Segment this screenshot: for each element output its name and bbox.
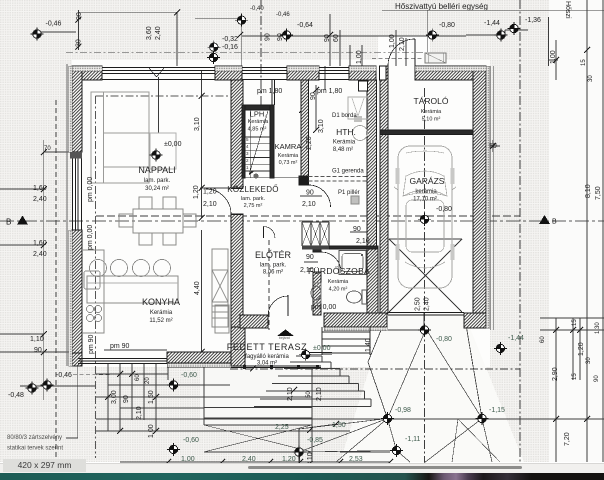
svg-text:KONYHA: KONYHA xyxy=(142,297,180,307)
svg-text:2,40: 2,40 xyxy=(33,196,47,203)
svg-text:1,00: 1,00 xyxy=(550,50,557,64)
svg-text:-0,46: -0,46 xyxy=(276,12,290,18)
svg-text:LPH.: LPH. xyxy=(250,110,267,119)
svg-text:-0,98: -0,98 xyxy=(395,407,411,414)
svg-text:60: 60 xyxy=(540,336,546,343)
svg-text:lam. park.: lam. park. xyxy=(260,263,287,269)
svg-text:15: 15 xyxy=(581,59,587,66)
svg-text:1,60: 1,60 xyxy=(33,240,47,247)
svg-text:Kerámia: Kerámia xyxy=(278,153,299,159)
svg-text:30: 30 xyxy=(76,39,83,47)
svg-text:90: 90 xyxy=(76,12,83,20)
svg-text:fagyálló kerámia: fagyálló kerámia xyxy=(245,354,289,360)
svg-text:pm 90: pm 90 xyxy=(110,343,130,350)
svg-text:KÖZLEKEDŐ: KÖZLEKEDŐ xyxy=(227,185,279,194)
svg-text:2,10: 2,10 xyxy=(300,267,314,274)
svg-text:pm 0,00: pm 0,00 xyxy=(311,304,336,311)
svg-text:-1,15: -1,15 xyxy=(489,407,505,414)
svg-text:bejárat: bejárat xyxy=(279,336,290,340)
svg-text:-0,32: -0,32 xyxy=(222,36,238,43)
svg-text:pm 0,00: pm 0,00 xyxy=(87,177,94,202)
svg-text:-0,48: -0,48 xyxy=(8,392,24,399)
svg-text:1,60: 1,60 xyxy=(33,185,47,192)
svg-text:pm 1,80: pm 1,80 xyxy=(317,88,342,95)
svg-text:2,10: 2,10 xyxy=(399,37,406,51)
svg-text:4,40: 4,40 xyxy=(194,281,201,295)
svg-text:80/80/3 zártszelvény: 80/80/3 zártszelvény xyxy=(7,435,62,441)
svg-text:-1,11: -1,11 xyxy=(405,436,421,443)
svg-text:1,40: 1,40 xyxy=(365,338,372,352)
svg-text:B: B xyxy=(6,218,11,227)
svg-text:90: 90 xyxy=(123,395,130,403)
svg-text:3,10: 3,10 xyxy=(194,117,201,131)
svg-text:2,40: 2,40 xyxy=(33,251,47,258)
svg-text:1,50: 1,50 xyxy=(148,390,155,404)
svg-text:Kerámia: Kerámia xyxy=(328,279,349,285)
svg-text:90: 90 xyxy=(34,347,42,354)
svg-text:Kerámia: Kerámia xyxy=(333,140,356,146)
svg-text:Kerámia: Kerámia xyxy=(150,310,173,316)
svg-text:B: B xyxy=(552,219,557,226)
svg-text:2,40: 2,40 xyxy=(424,297,431,311)
svg-text:15: 15 xyxy=(572,319,578,326)
svg-text:-0,80: -0,80 xyxy=(436,206,452,213)
svg-text:4,85 m²: 4,85 m² xyxy=(248,127,267,133)
svg-text:5,10 m²: 5,10 m² xyxy=(422,117,441,123)
svg-text:TÁROLÓ: TÁROLÓ xyxy=(414,96,449,106)
svg-text:Hőszivattyú belléri egység: Hőszivattyú belléri egység xyxy=(395,2,488,11)
svg-text:3,04 m²: 3,04 m² xyxy=(257,361,277,367)
svg-text:FEDETT TERASZ: FEDETT TERASZ xyxy=(227,342,307,352)
svg-text:ELŐTÉR: ELŐTÉR xyxy=(255,250,292,260)
svg-text:2,20: 2,20 xyxy=(306,136,313,150)
svg-text:60: 60 xyxy=(135,374,141,381)
svg-text:1,50: 1,50 xyxy=(332,422,346,429)
svg-text:7,20: 7,20 xyxy=(564,432,571,446)
svg-text:kerámia: kerámia xyxy=(415,189,437,195)
svg-text:Kerámia: Kerámia xyxy=(248,119,269,125)
svg-text:20: 20 xyxy=(145,377,151,384)
svg-text:pm 0,00: pm 0,00 xyxy=(87,225,94,250)
svg-text:Hőszi: Hőszi xyxy=(564,1,571,19)
svg-text:-0,46: -0,46 xyxy=(56,372,72,379)
svg-text:±0,00: ±0,00 xyxy=(164,141,182,148)
svg-text:pm 1,80: pm 1,80 xyxy=(257,88,282,95)
svg-text:90: 90 xyxy=(353,226,361,233)
svg-text:50: 50 xyxy=(306,391,312,398)
svg-text:90: 90 xyxy=(306,254,314,261)
svg-text:lam. park.: lam. park. xyxy=(241,196,266,202)
svg-text:0,73 m²: 0,73 m² xyxy=(279,160,298,166)
svg-text:-1,44: -1,44 xyxy=(484,20,500,27)
svg-text:3,60: 3,60 xyxy=(146,26,153,40)
svg-text:90: 90 xyxy=(306,190,314,197)
svg-text:lam. park.: lam. park. xyxy=(144,178,171,184)
svg-text:1,00: 1,00 xyxy=(356,50,363,64)
svg-text:P1 pillér: P1 pillér xyxy=(338,190,360,196)
svg-text:-0,60: -0,60 xyxy=(181,372,197,379)
svg-text:30: 30 xyxy=(586,357,592,364)
svg-text:8,10: 8,10 xyxy=(585,184,592,198)
svg-text:2,10: 2,10 xyxy=(136,406,143,420)
svg-text:-0,40: -0,40 xyxy=(250,6,264,12)
svg-text:HTH.: HTH. xyxy=(336,127,356,137)
svg-text:30,24 m²: 30,24 m² xyxy=(145,186,169,192)
svg-text:1,00: 1,00 xyxy=(389,34,396,48)
svg-text:±0,00: ±0,00 xyxy=(313,345,331,352)
svg-text:G1 gerenda: G1 gerenda xyxy=(332,169,364,175)
svg-text:NAPPALI: NAPPALI xyxy=(138,165,175,175)
svg-text:GARÁZS: GARÁZS xyxy=(410,176,445,186)
svg-text:3,00: 3,00 xyxy=(111,390,118,404)
svg-text:1,20: 1,20 xyxy=(193,185,200,199)
svg-text:-1,44: -1,44 xyxy=(508,335,524,342)
svg-text:pm 90: pm 90 xyxy=(88,334,95,354)
svg-text:1,20: 1,20 xyxy=(578,342,585,356)
svg-text:2,10: 2,10 xyxy=(316,387,323,401)
svg-text:Kerámia: Kerámia xyxy=(421,109,442,115)
svg-text:90: 90 xyxy=(594,375,600,382)
svg-text:70: 70 xyxy=(44,146,51,152)
svg-text:1,30: 1,30 xyxy=(595,322,601,334)
svg-text:15: 15 xyxy=(572,373,578,380)
svg-text:7,50: 7,50 xyxy=(595,186,602,200)
svg-text:2,90: 2,90 xyxy=(552,367,559,381)
svg-text:-1,36: -1,36 xyxy=(525,17,541,24)
svg-text:11,52 m²: 11,52 m² xyxy=(149,318,172,324)
svg-text:-0,46: -0,46 xyxy=(46,21,62,28)
svg-text:17,10 m²: 17,10 m² xyxy=(413,197,437,203)
svg-text:-0,16: -0,16 xyxy=(222,44,238,51)
svg-text:8,48 m²: 8,48 m² xyxy=(333,147,353,153)
svg-text:-0,60: -0,60 xyxy=(183,437,199,444)
svg-text:-0,64: -0,64 xyxy=(297,22,313,29)
svg-text:statikai tervek szerint: statikai tervek szerint xyxy=(7,446,63,452)
svg-text:3,10: 3,10 xyxy=(318,119,325,133)
svg-text:1,10: 1,10 xyxy=(30,336,44,343)
svg-text:D1 borda: D1 borda xyxy=(332,113,357,119)
svg-text:2,25: 2,25 xyxy=(275,424,289,431)
svg-text:2,40: 2,40 xyxy=(155,26,162,40)
svg-text:60: 60 xyxy=(333,34,340,42)
svg-text:KAMRA: KAMRA xyxy=(275,142,302,151)
svg-text:50: 50 xyxy=(489,143,497,150)
svg-text:FÜRDŐSZOBA: FÜRDŐSZOBA xyxy=(308,266,370,276)
svg-text:2,75 m²: 2,75 m² xyxy=(244,203,263,209)
svg-text:2,10: 2,10 xyxy=(356,238,370,245)
svg-text:8,06 m²: 8,06 m² xyxy=(263,270,283,276)
svg-text:-0,85: -0,85 xyxy=(307,437,323,444)
svg-text:1,20: 1,20 xyxy=(203,189,217,196)
svg-text:2,10: 2,10 xyxy=(203,201,217,208)
svg-text:30: 30 xyxy=(588,75,594,82)
svg-text:-0,80: -0,80 xyxy=(439,22,455,29)
svg-text:2,50: 2,50 xyxy=(415,297,422,311)
svg-text:1,00: 1,00 xyxy=(148,424,155,438)
svg-text:90: 90 xyxy=(310,92,317,100)
svg-text:2,10: 2,10 xyxy=(287,387,294,401)
svg-text:90: 90 xyxy=(324,34,331,42)
svg-text:90: 90 xyxy=(265,33,272,41)
svg-text:-0,80: -0,80 xyxy=(436,336,452,343)
svg-text:4,20 m²: 4,20 m² xyxy=(329,287,348,293)
svg-text:2,10: 2,10 xyxy=(302,201,316,208)
